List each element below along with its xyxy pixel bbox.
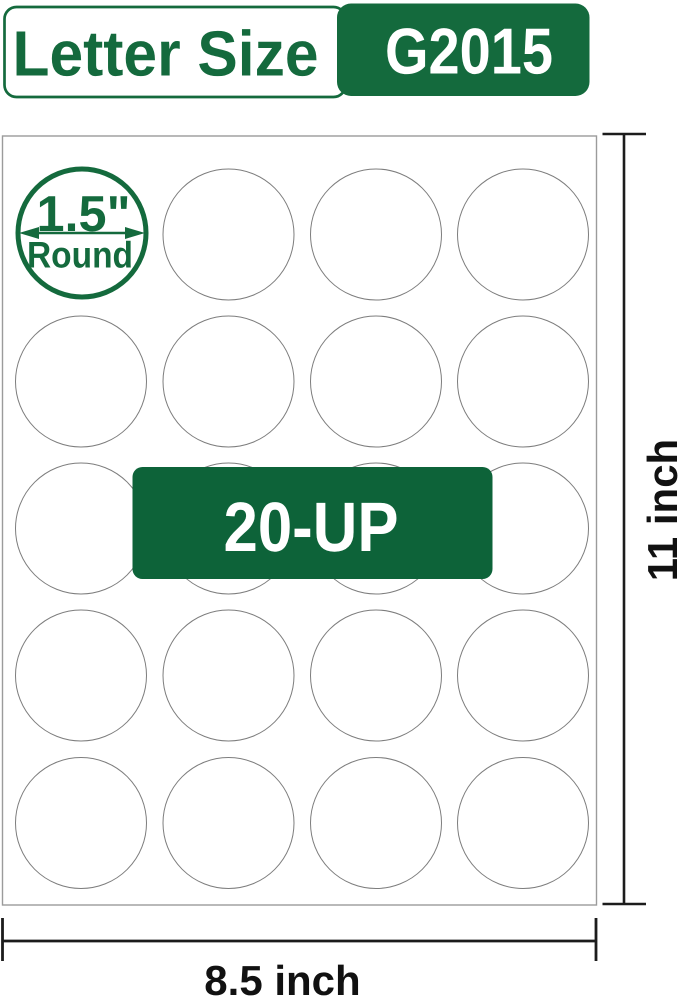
svg-text:Round: Round <box>27 235 133 276</box>
svg-text:20-UP: 20-UP <box>224 488 399 566</box>
svg-text:G2015: G2015 <box>385 15 553 88</box>
svg-text:Letter Size: Letter Size <box>13 18 319 90</box>
svg-text:8.5 inch: 8.5 inch <box>204 957 360 1000</box>
svg-text:11 inch: 11 inch <box>639 439 679 581</box>
